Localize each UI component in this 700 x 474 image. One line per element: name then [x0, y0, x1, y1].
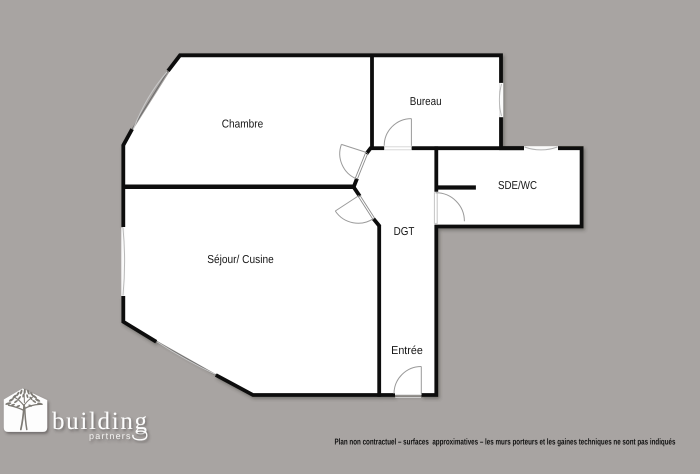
svg-text:Chambre: Chambre [222, 119, 264, 131]
svg-text:partners: partners [89, 431, 131, 441]
svg-text:Plan non contractuel – surface: Plan non contractuel – surfaces approxim… [335, 436, 676, 446]
svg-text:SDE/WC: SDE/WC [498, 180, 537, 192]
svg-text:Bureau: Bureau [410, 96, 442, 108]
svg-text:DGT: DGT [394, 226, 415, 238]
svg-text:Séjour/ Cusine: Séjour/ Cusine [207, 254, 274, 266]
svg-text:Entrée: Entrée [391, 345, 423, 357]
